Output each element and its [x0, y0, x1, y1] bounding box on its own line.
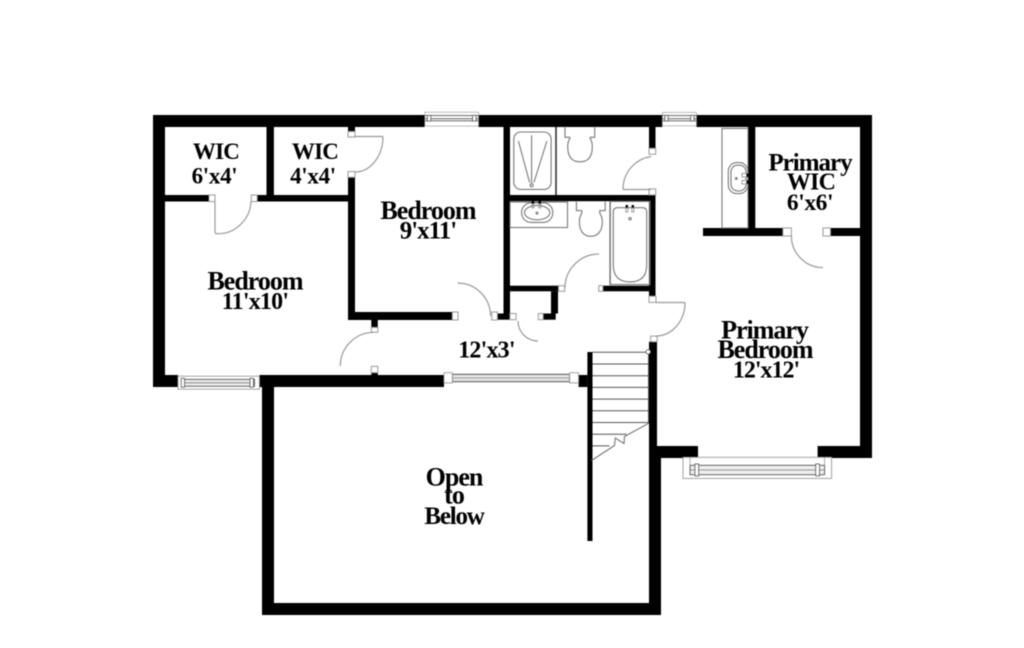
svg-text:Below: Below	[424, 503, 484, 530]
svg-text:12'x12': 12'x12'	[733, 357, 799, 383]
svg-text:12'x3': 12'x3'	[458, 338, 515, 364]
svg-text:11'x10': 11'x10'	[222, 289, 288, 315]
svg-text:WIC: WIC	[193, 139, 239, 164]
svg-text:9'x11': 9'x11'	[400, 218, 457, 245]
svg-text:4'x4': 4'x4'	[290, 164, 336, 189]
svg-text:6'x6': 6'x6'	[787, 190, 833, 216]
svg-text:6'x4': 6'x4'	[192, 164, 238, 189]
svg-text:WIC: WIC	[292, 139, 338, 164]
